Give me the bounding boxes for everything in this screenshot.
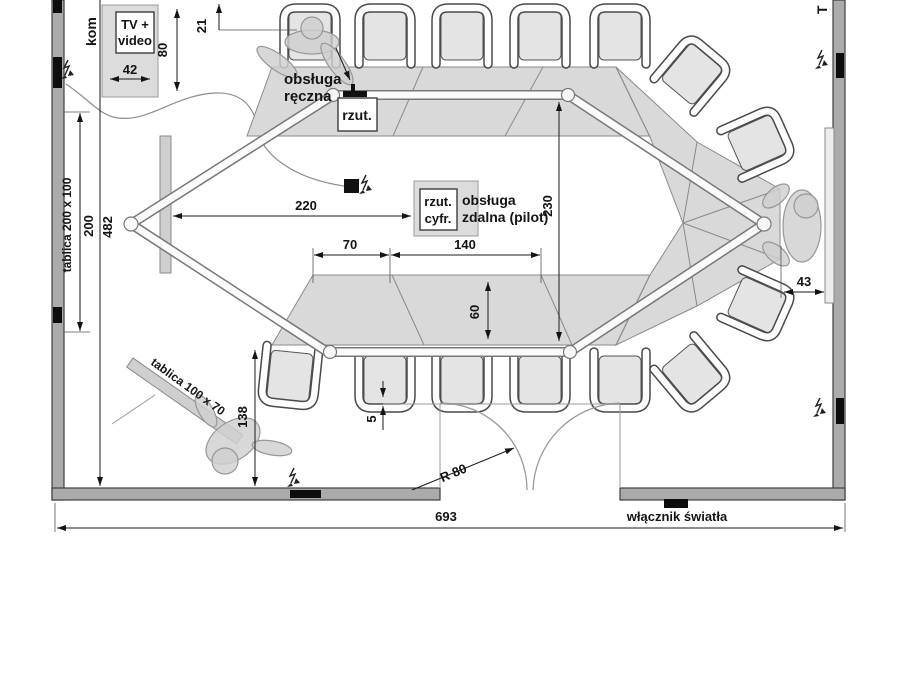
double-door: [383, 403, 620, 490]
power-outlet-icon: [290, 490, 321, 498]
rod-joint: [124, 217, 138, 231]
power-outlet-icon: [53, 307, 62, 323]
conference-room-plan: kom T TV + video 42 80 21 obsługa ręczna…: [0, 0, 900, 700]
lightning-icon: [813, 398, 826, 417]
label-tv-line2: video: [118, 33, 152, 48]
power-outlet-icon: [836, 398, 844, 424]
chair: [359, 8, 411, 64]
wall-screen-right: [825, 128, 834, 303]
person-head: [301, 17, 323, 39]
label-obsluga-reczna-2: ręczna: [284, 88, 332, 105]
person-head: [212, 448, 238, 474]
label-rzut: rzut.: [342, 107, 372, 123]
power-outlet-icon: [53, 0, 62, 13]
chair: [436, 8, 488, 64]
rod-joint: [562, 89, 575, 102]
lightning-icon: [815, 50, 828, 69]
chair: [514, 8, 566, 64]
dim-70: 70: [343, 237, 357, 252]
chair: [594, 352, 646, 408]
dim-693: 693: [435, 509, 457, 524]
chair: [654, 336, 730, 412]
label-tv-line1: TV +: [121, 17, 149, 32]
chair: [514, 352, 566, 408]
chair: [436, 352, 488, 408]
light-switch-icon: [664, 499, 688, 508]
label-kom: kom: [83, 17, 99, 46]
label-obsluga-zdalna-1: obsługa: [462, 192, 516, 208]
lightning-icon: [359, 175, 372, 194]
dim-43: 43: [797, 274, 811, 289]
label-obsluga-reczna-1: obsługa: [284, 71, 342, 88]
rod-joint: [324, 346, 337, 359]
chair: [261, 345, 319, 406]
dim-482: 482: [100, 216, 115, 238]
wall-bottom-right: [620, 488, 845, 500]
dim-140: 140: [454, 237, 476, 252]
flipchart-leg: [112, 395, 155, 424]
dim-21: 21: [194, 19, 209, 33]
dim-200: 200: [81, 215, 96, 237]
label-wlacznik-swiatla: włącznik światła: [626, 509, 728, 524]
floor-connection-box: [344, 179, 359, 193]
rod-joint: [564, 346, 577, 359]
chair: [594, 8, 646, 64]
chair: [359, 352, 411, 408]
label-rzut-cyfr-1: rzut.: [424, 194, 451, 209]
dim-42: 42: [123, 62, 137, 77]
dim-5: 5: [364, 415, 379, 422]
label-t-right: T: [814, 5, 830, 14]
rod-joint: [757, 217, 771, 231]
power-outlet-icon: [836, 53, 844, 78]
person-head: [794, 194, 818, 218]
wall-bottom-left: [52, 488, 440, 500]
power-outlet-icon: [53, 57, 62, 88]
chair: [654, 36, 730, 112]
dim-220: 220: [295, 198, 317, 213]
label-rzut-cyfr-2: cyfr.: [425, 211, 452, 226]
dim-60: 60: [467, 305, 482, 319]
floor-plan-page: kom T TV + video 42 80 21 obsługa ręczna…: [0, 0, 900, 700]
dim-230: 230: [540, 195, 555, 217]
dim-80: 80: [155, 43, 170, 57]
label-tablica-left: tablica 200 x 100: [60, 177, 74, 272]
lightning-icon: [287, 468, 300, 487]
dim-138: 138: [235, 406, 250, 428]
dim-r80: R 80: [438, 461, 469, 486]
door-swing-right: [533, 403, 620, 490]
label-obsluga-zdalna-2: zdalna (pilot): [462, 209, 548, 225]
